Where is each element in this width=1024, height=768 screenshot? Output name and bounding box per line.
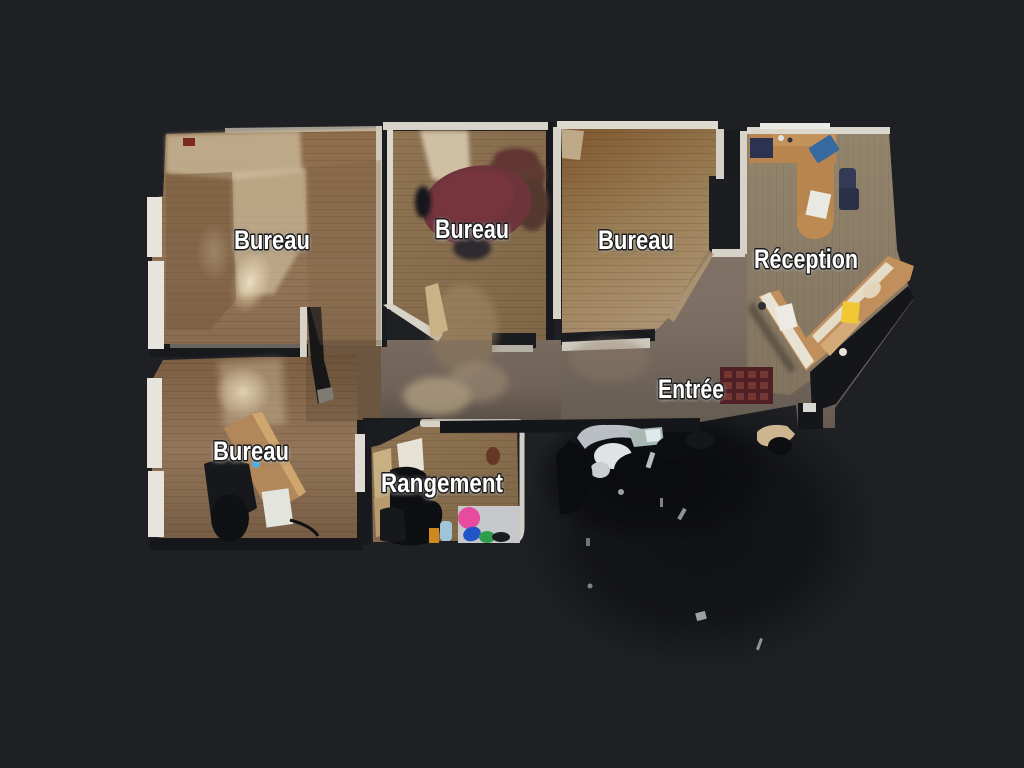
svg-text:Entrée: Entrée bbox=[658, 374, 724, 404]
svg-text:Rangement: Rangement bbox=[381, 468, 503, 498]
svg-text:Bureau: Bureau bbox=[234, 225, 310, 255]
svg-text:Réception: Réception bbox=[754, 244, 858, 274]
svg-text:Bureau: Bureau bbox=[213, 436, 289, 466]
svg-text:Bureau: Bureau bbox=[435, 214, 509, 244]
svg-text:Bureau: Bureau bbox=[598, 225, 674, 255]
